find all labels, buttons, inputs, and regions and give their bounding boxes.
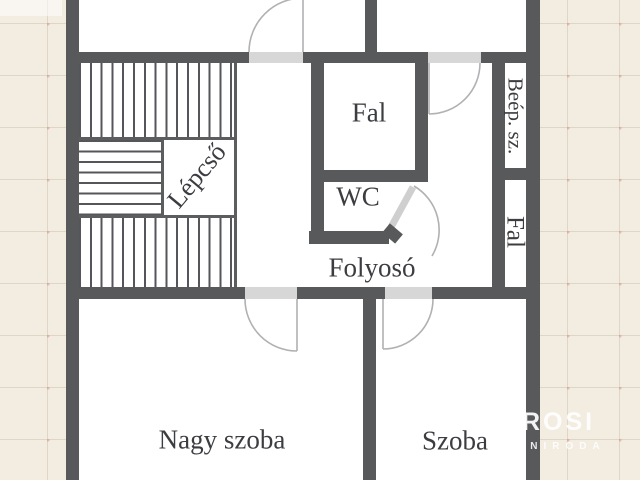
- room-label-corridor: Folyosó: [328, 255, 415, 282]
- door-threshold-upper-left: [249, 52, 303, 63]
- wall-wc-bottom: [309, 231, 389, 244]
- wall-corridor-bottom-middle: [297, 287, 385, 299]
- watermark-brand: ROSI: [522, 410, 595, 435]
- wall-corridor-bottom-left: [79, 287, 245, 299]
- wall-top-segment-left: [79, 52, 249, 63]
- room-label-room: Szoba: [422, 428, 488, 455]
- wall-room-divider: [363, 299, 376, 480]
- door-threshold-room: [385, 287, 432, 299]
- room-label-big-room: Nagy szoba: [159, 427, 286, 454]
- door-threshold-upper-right: [428, 52, 481, 63]
- stairs-upper-flight: [79, 63, 234, 137]
- floor-plan-canvas: Lépcső Fal WC Folyosó Beép. sz. Fal Nagy…: [0, 0, 640, 480]
- stairs-lower-flight: [79, 218, 234, 287]
- wall-exterior-left: [66, 0, 79, 480]
- stairs-right-border: [234, 63, 237, 287]
- room-label-wc: WC: [336, 184, 380, 211]
- wall-fal-block-left: [311, 52, 324, 182]
- room-label-fal-right: Fal: [503, 216, 528, 248]
- room-label-fal-top: Fal: [352, 100, 387, 127]
- page-corner-highlight: [0, 0, 62, 16]
- stairs-mid-flight: [79, 140, 161, 215]
- wall-closet-divider: [492, 168, 526, 180]
- wall-corridor-bottom-right: [432, 287, 526, 299]
- door-threshold-big-room: [245, 287, 297, 299]
- watermark-subtitle: ANIRODA: [517, 442, 606, 452]
- wall-fal-block-right: [415, 52, 428, 182]
- wall-fal-block-bottom: [311, 170, 428, 182]
- room-label-closet: Beép. sz.: [505, 78, 526, 154]
- wall-top-room-divider-stub: [365, 0, 377, 52]
- wall-top-segment-right: [481, 52, 526, 63]
